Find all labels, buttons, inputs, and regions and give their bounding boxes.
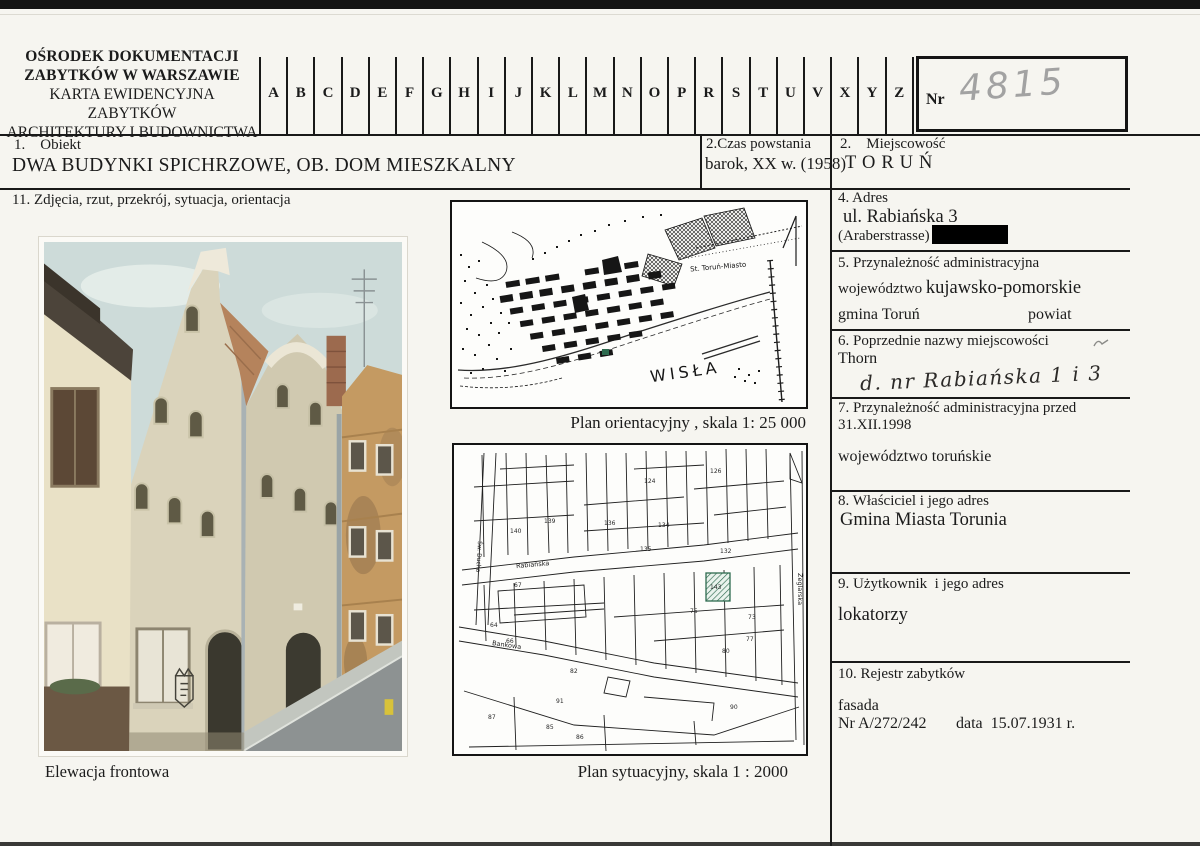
parcel-number: 143: [710, 584, 722, 591]
parcel-number: 124: [644, 478, 656, 485]
parcel-number: 126: [710, 468, 722, 475]
field9-label: 9. Użytkownik i jego adres: [838, 576, 1004, 593]
parcel-number: 139: [544, 518, 556, 525]
alpha-cell: F: [395, 57, 422, 134]
rule: [830, 329, 1130, 331]
alpha-cell: R: [694, 57, 721, 134]
situational-plan-caption: Plan sytuacyjny, skala 1 : 2000: [452, 762, 788, 782]
parcel-number: 85: [546, 724, 554, 731]
rule: [830, 661, 1130, 663]
field10-label: 10. Rejestr zabytków: [838, 666, 965, 683]
parcel-number: 86: [576, 734, 584, 741]
alpha-cell: D: [341, 57, 368, 134]
nr-label: Nr: [926, 91, 945, 109]
alpha-cell: U: [776, 57, 803, 134]
parcel-number: 140: [510, 528, 522, 535]
field10-fasada: fasada: [838, 697, 879, 715]
alpha-cell: Z: [885, 57, 912, 134]
alpha-cell: A: [259, 57, 286, 134]
alphabet-index-row: A B C D E F G H I J K L M N O P R S T U …: [259, 57, 914, 134]
field5-powiat: powiat: [1028, 306, 1072, 324]
field1-label: 1. Obiekt: [14, 137, 81, 154]
alpha-cell: Y: [857, 57, 884, 134]
field8-value: Gmina Miasta Torunia: [840, 510, 1007, 531]
divider: [700, 134, 702, 188]
scan-bottom-edge: [0, 842, 1200, 846]
field6-label: 6. Poprzednie nazwy miejscowości: [838, 333, 1049, 350]
orientation-map-caption: Plan orientacyjny , skala 1: 25 000: [450, 413, 806, 433]
situational-plan-drawing: Rabiańska Bankowa Żeglarska Św. Ducha 12…: [454, 445, 806, 754]
field5-label: 5. Przynależność administracyjna: [838, 255, 1039, 272]
rule: [830, 572, 1130, 574]
alpha-cell: J: [504, 57, 531, 134]
institution-header: OŚRODEK DOKUMENTACJI ZABYTKÓW W WARSZAWI…: [6, 47, 258, 142]
photo-elevation: [38, 236, 408, 757]
parcel-number: 87: [488, 714, 496, 721]
pen-mark-artifact: [1092, 336, 1110, 350]
field7-label-line2: 31.XII.1998: [838, 417, 911, 434]
photo-elevation-drawing: [44, 242, 402, 751]
field4-german-name: (Araberstrasse): [838, 228, 930, 245]
alpha-cell: K: [531, 57, 558, 134]
institution-line2: ZABYTKÓW W WARSZAWIE: [24, 67, 240, 84]
alpha-cell: I: [477, 57, 504, 134]
field10-register-number: Nr A/272/242: [838, 715, 926, 733]
field4-label: 4. Adres: [838, 190, 888, 207]
situational-plan: Rabiańska Bankowa Żeglarska Św. Ducha 12…: [452, 443, 808, 756]
parcel-number: 90: [730, 704, 738, 711]
parcel-number: 66: [506, 638, 514, 645]
parcel-number: 64: [490, 622, 498, 629]
voivodeship-label: województwo: [838, 281, 926, 297]
parcel-number: 132: [720, 548, 732, 555]
nr-handwritten-value: 4815: [958, 61, 1068, 109]
field7-label-line1: 7. Przynależność administracyjna przed: [838, 400, 1076, 417]
rule: [830, 250, 1130, 252]
alpha-cell: M: [585, 57, 612, 134]
institution-line1: OŚRODEK DOKUMENTACJI: [25, 48, 238, 65]
parcel-number: 80: [722, 648, 730, 655]
parcel-number: 136: [604, 520, 616, 527]
parcel-number: 134: [658, 522, 670, 529]
card-top-crease: [0, 14, 1200, 15]
alpha-cell: X: [830, 57, 857, 134]
field2-miejscowosc-value: TORUŃ: [845, 153, 938, 174]
alpha-cell: C: [313, 57, 340, 134]
parcel-number: 82: [570, 668, 578, 675]
scan-top-edge: [0, 0, 1200, 9]
field6-handwritten-note: d. nr Rabiańska 1 i 3: [860, 361, 1103, 396]
alpha-cell: H: [449, 57, 476, 134]
scanned-heritage-card: OŚRODEK DOKUMENTACJI ZABYTKÓW W WARSZAWI…: [0, 0, 1200, 846]
parcel-number: 91: [556, 698, 564, 705]
field11-label: 11. Zdjęcia, rzut, przekrój, sytuacja, o…: [12, 192, 290, 209]
parcel-number: 73: [748, 614, 756, 621]
rule: [0, 188, 1130, 190]
rule: [830, 397, 1130, 399]
rule: [0, 134, 1200, 136]
voivodeship-value: kujawsko-pomorskie: [926, 278, 1081, 298]
rule: [830, 490, 1130, 492]
alpha-cell: B: [286, 57, 313, 134]
alpha-cell: E: [368, 57, 395, 134]
alpha-cell: T: [749, 57, 776, 134]
field5-voivodeship: województwo kujawsko-pomorskie: [838, 278, 1081, 299]
field8-label: 8. Właściciel i jego adres: [838, 493, 989, 510]
redaction-box: [932, 225, 1008, 244]
alpha-cell: L: [558, 57, 585, 134]
site-marker: [602, 349, 609, 355]
field6-value: Thorn: [838, 350, 877, 368]
alpha-cell: V: [803, 57, 830, 134]
alpha-cell: N: [613, 57, 640, 134]
field2-czas-label: 2.Czas powstania: [706, 136, 811, 153]
parcel-number: 67: [514, 582, 522, 589]
field9-value: lokatorzy: [838, 605, 908, 626]
alpha-cell: S: [721, 57, 748, 134]
field1-value: DWA BUDYNKI SPICHRZOWE, OB. DOM MIESZKAL…: [12, 155, 516, 177]
field2-czas-value: barok, XX w. (1958): [705, 154, 846, 174]
orientation-map-drawing: WISŁA St. Toruń-Miasto: [452, 202, 806, 407]
field2-miejscowosc-label: 2. Miejscowość: [840, 136, 945, 153]
parcel-number: 77: [746, 636, 754, 643]
field5-gmina: gmina Toruń: [838, 306, 920, 324]
field7-value: województwo toruńskie: [838, 448, 991, 466]
street-label-zeglarska: Żeglarska: [796, 573, 805, 605]
field10-register-date: data 15.07.1931 r.: [956, 715, 1075, 733]
alpha-cell: O: [640, 57, 667, 134]
card-type-line1: KARTA EWIDENCYJNA ZABYTKÓW: [6, 85, 258, 123]
orientation-map: WISŁA St. Toruń-Miasto: [450, 200, 808, 409]
alpha-cell: G: [422, 57, 449, 134]
photo-caption: Elewacja frontowa: [45, 762, 169, 782]
alpha-cell: P: [667, 57, 694, 134]
parcel-number: 75: [690, 608, 698, 615]
parcel-number: 135: [640, 546, 652, 553]
card-number-box: Nr 4815: [916, 56, 1128, 132]
